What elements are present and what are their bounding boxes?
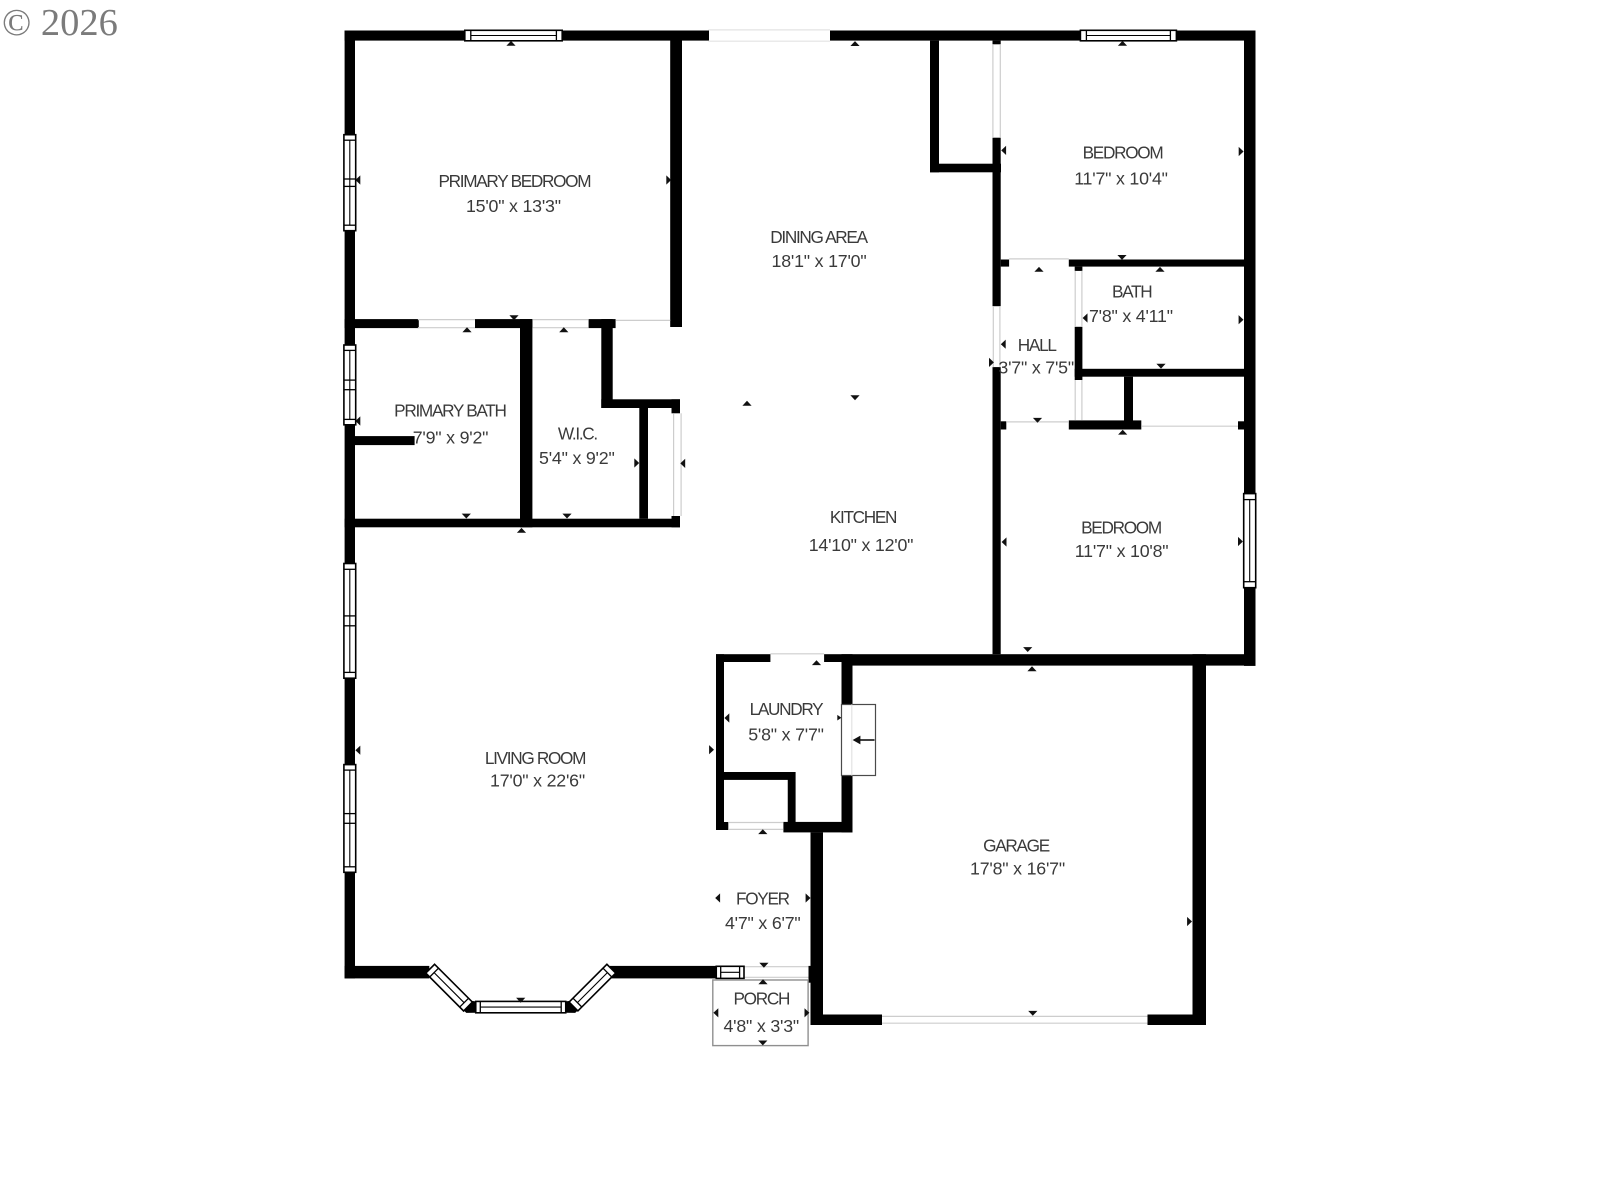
svg-text:© 2026: © 2026 (2, 2, 118, 44)
svg-text:7'8" x 4'11": 7'8" x 4'11" (1089, 306, 1173, 326)
svg-text:BEDROOM: BEDROOM (1083, 142, 1163, 162)
svg-text:3'7" x 7'5": 3'7" x 7'5" (998, 358, 1074, 378)
svg-text:7'9" x 9'2": 7'9" x 9'2" (413, 428, 489, 448)
svg-text:PRIMARY BEDROOM: PRIMARY BEDROOM (439, 171, 591, 191)
svg-text:5'4" x 9'2": 5'4" x 9'2" (539, 448, 615, 468)
svg-text:18'1" x 17'0": 18'1" x 17'0" (772, 251, 867, 271)
svg-text:FOYER: FOYER (736, 888, 790, 908)
svg-text:11'7" x 10'4": 11'7" x 10'4" (1074, 169, 1168, 189)
svg-text:BATH: BATH (1112, 281, 1152, 301)
svg-text:HALL: HALL (1018, 335, 1057, 355)
svg-text:BEDROOM: BEDROOM (1081, 517, 1161, 537)
svg-text:4'8" x 3'3": 4'8" x 3'3" (723, 1016, 799, 1036)
svg-text:14'10" x 12'0": 14'10" x 12'0" (809, 535, 914, 555)
svg-text:PORCH: PORCH (734, 988, 790, 1008)
svg-text:LAUNDRY: LAUNDRY (750, 699, 825, 719)
svg-text:4'7" x 6'7": 4'7" x 6'7" (725, 913, 801, 933)
svg-text:15'0" x 13'3": 15'0" x 13'3" (466, 196, 561, 216)
svg-text:DINING AREA: DINING AREA (770, 227, 868, 247)
svg-text:KITCHEN: KITCHEN (830, 507, 897, 527)
svg-text:LIVING ROOM: LIVING ROOM (485, 748, 585, 768)
svg-text:W.I.C.: W.I.C. (558, 424, 598, 444)
svg-text:GARAGE: GARAGE (983, 835, 1050, 855)
svg-text:11'7" x 10'8": 11'7" x 10'8" (1075, 541, 1169, 561)
svg-text:17'0" x 22'6": 17'0" x 22'6" (490, 771, 585, 791)
svg-text:PRIMARY BATH: PRIMARY BATH (394, 401, 506, 421)
svg-text:5'8" x 7'7": 5'8" x 7'7" (748, 725, 824, 745)
svg-text:17'8" x 16'7": 17'8" x 16'7" (970, 859, 1065, 879)
